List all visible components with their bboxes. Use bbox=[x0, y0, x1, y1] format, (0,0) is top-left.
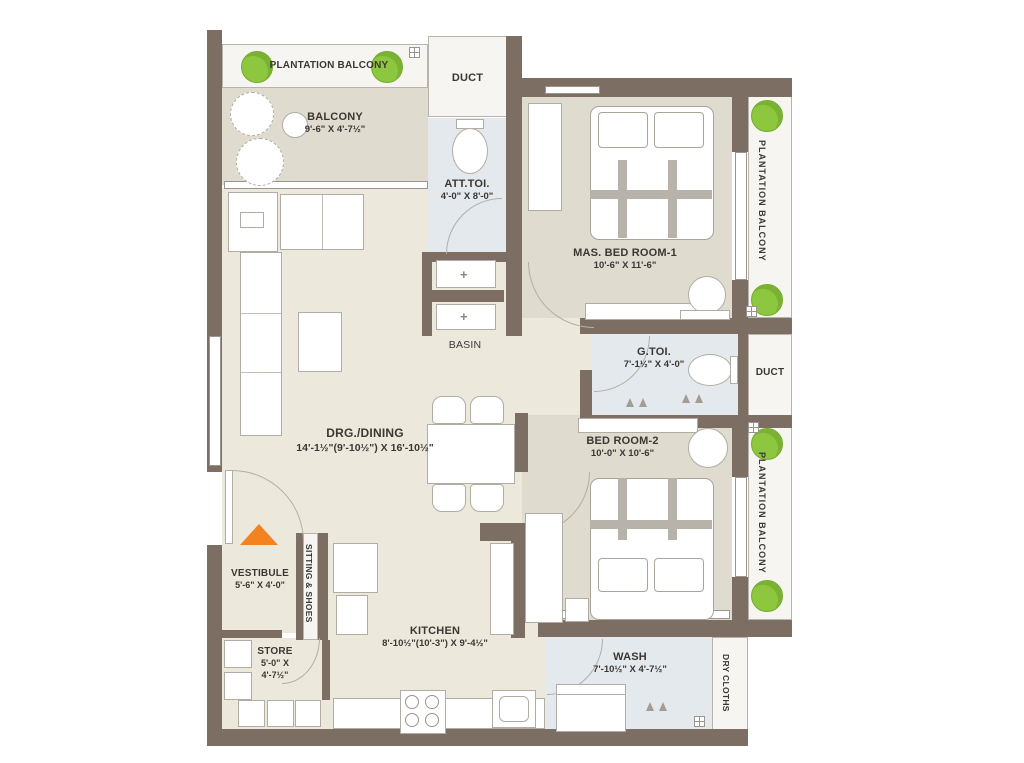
label-g-toi: G.TOI. 7'-1½" X 4'-0" bbox=[594, 345, 714, 372]
floor-plan: + + PLANTATION BALCONY BALCONY 9'-6" X 4… bbox=[0, 0, 1024, 763]
bed-runner bbox=[668, 478, 677, 540]
window bbox=[209, 336, 221, 466]
label-mas-bedroom: MAS. BED ROOM-1 10'-6" X 11'-6" bbox=[530, 246, 720, 273]
bed-runner bbox=[668, 160, 677, 238]
burner-icon bbox=[425, 695, 439, 709]
bedside-table bbox=[565, 598, 589, 622]
person-figures-icon bbox=[682, 394, 703, 403]
wall bbox=[218, 630, 282, 638]
balcony-chair bbox=[236, 138, 284, 186]
vent-icon bbox=[694, 716, 705, 727]
balcony-chair bbox=[230, 92, 274, 136]
store-shelf bbox=[267, 700, 294, 727]
wall bbox=[322, 640, 330, 700]
wall bbox=[732, 95, 748, 152]
dining-chair bbox=[432, 484, 466, 512]
toilet-mbr bbox=[688, 276, 726, 314]
wall bbox=[538, 620, 792, 637]
store-shelf bbox=[295, 700, 321, 727]
wardrobe bbox=[525, 513, 563, 623]
wall bbox=[732, 577, 748, 620]
vent-icon bbox=[409, 47, 420, 58]
wall bbox=[738, 334, 748, 415]
vent-icon bbox=[746, 306, 757, 317]
store-shelf bbox=[238, 700, 265, 727]
wardrobe bbox=[528, 103, 562, 211]
label-dry-cloths: DRY CLOTHS bbox=[721, 654, 731, 712]
label-plantation-right-bottom: PLANTATION BALCONY bbox=[757, 452, 767, 574]
label-bed-room-2: BED ROOM-2 10'-0" X 10'-6" bbox=[535, 434, 710, 461]
label-balcony: BALCONY 9'-6" X 4'-7½" bbox=[280, 110, 390, 137]
sofa bbox=[240, 252, 282, 436]
toilet-tank bbox=[730, 356, 738, 384]
label-plantation-top: PLANTATION BALCONY bbox=[255, 59, 403, 72]
label-basin: BASIN bbox=[424, 339, 506, 353]
dresser bbox=[578, 418, 698, 433]
person-figures-icon bbox=[646, 702, 667, 711]
wall bbox=[506, 36, 522, 336]
washing-machine bbox=[556, 684, 626, 732]
wall bbox=[515, 413, 528, 472]
wall bbox=[580, 318, 792, 334]
wall bbox=[207, 545, 222, 732]
wall bbox=[480, 523, 525, 541]
pillow bbox=[654, 112, 704, 148]
kitchen-platform bbox=[490, 543, 514, 635]
person-figures-icon bbox=[626, 398, 647, 407]
tv-icon bbox=[240, 212, 264, 228]
bed-runner bbox=[618, 478, 627, 540]
window bbox=[545, 86, 600, 94]
bed-runner bbox=[590, 520, 712, 529]
bed-2 bbox=[590, 478, 714, 620]
label-vestibule: VESTIBULE 5'-6" X 4'-0" bbox=[222, 567, 298, 592]
label-sitting-shoes: SITTING & SHOES bbox=[304, 544, 314, 623]
dining-chair bbox=[470, 484, 504, 512]
dining-chair bbox=[470, 396, 504, 424]
kitchen-unit bbox=[333, 543, 378, 593]
label-plantation-right-top: PLANTATION BALCONY bbox=[757, 140, 767, 262]
tree-icon bbox=[751, 100, 783, 132]
label-store: STORE 5'-0" X 4'-7½" bbox=[240, 645, 310, 681]
window bbox=[735, 152, 747, 280]
pillow bbox=[598, 112, 648, 148]
burner-icon bbox=[405, 695, 419, 709]
label-duct-right: DUCT bbox=[748, 366, 792, 379]
basin-tap-icon: + bbox=[460, 310, 468, 323]
label-duct-top: DUCT bbox=[428, 71, 507, 85]
wall bbox=[207, 729, 748, 746]
wall bbox=[732, 420, 748, 477]
basin-tap-icon: + bbox=[460, 268, 468, 281]
wall bbox=[430, 290, 504, 302]
wall bbox=[318, 533, 328, 640]
burner-icon bbox=[425, 713, 439, 727]
bed-runner bbox=[618, 160, 627, 238]
entry-arrow-icon bbox=[240, 524, 278, 545]
bed-runner bbox=[590, 190, 712, 199]
window bbox=[735, 477, 747, 577]
label-wash: WASH 7'-10½" X 4'-7½" bbox=[555, 650, 705, 677]
label-kitchen: KITCHEN 8'-10½"(10'-3") X 9'-4½" bbox=[330, 624, 540, 651]
pillow bbox=[598, 558, 648, 592]
wall bbox=[580, 370, 592, 415]
coffee-table bbox=[298, 312, 342, 372]
sink-basin bbox=[499, 696, 529, 722]
label-att-toi: ATT.TOI. 4'-0" X 8'-0" bbox=[428, 177, 506, 204]
toilet-att bbox=[452, 128, 488, 174]
burner-icon bbox=[405, 713, 419, 727]
tree-icon bbox=[751, 580, 783, 612]
toilet-base bbox=[680, 310, 730, 320]
label-drg-dining: DRG./DINING 14'-1½"(9'-10½") X 16'-10½" bbox=[245, 426, 485, 455]
sofa bbox=[280, 194, 364, 250]
toilet-tank bbox=[456, 119, 484, 129]
vent-icon bbox=[748, 422, 759, 433]
dining-chair bbox=[432, 396, 466, 424]
entry-door-leaf bbox=[225, 470, 233, 544]
pillow bbox=[654, 558, 704, 592]
